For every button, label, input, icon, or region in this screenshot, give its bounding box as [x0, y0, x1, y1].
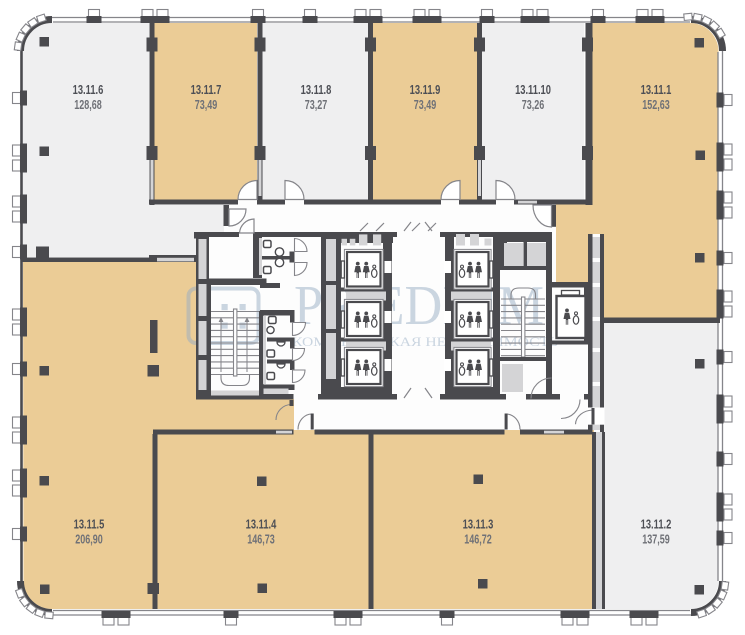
svg-text:13.11.2: 13.11.2	[641, 518, 672, 532]
svg-text:73,27: 73,27	[305, 99, 327, 113]
svg-text:137,59: 137,59	[642, 533, 669, 547]
svg-text:13.11.8: 13.11.8	[301, 84, 332, 98]
svg-text:146,73: 146,73	[247, 533, 274, 547]
svg-text:73,49: 73,49	[195, 99, 217, 113]
svg-text:206,90: 206,90	[75, 533, 102, 547]
svg-text:13.11.10: 13.11.10	[515, 84, 551, 98]
svg-text:152,63: 152,63	[642, 99, 669, 113]
svg-text:146,72: 146,72	[464, 533, 491, 547]
svg-text:13.11.5: 13.11.5	[74, 518, 105, 532]
svg-text:13.11.9: 13.11.9	[410, 84, 441, 98]
svg-text:128,68: 128,68	[74, 99, 101, 113]
svg-text:13.11.1: 13.11.1	[641, 84, 672, 98]
svg-text:13.11.7: 13.11.7	[191, 84, 222, 98]
svg-text:13.11.4: 13.11.4	[246, 518, 277, 532]
svg-text:73,49: 73,49	[414, 99, 436, 113]
svg-text:73,26: 73,26	[522, 99, 544, 113]
svg-text:13.11.3: 13.11.3	[463, 518, 494, 532]
svg-text:13.11.6: 13.11.6	[73, 84, 104, 98]
